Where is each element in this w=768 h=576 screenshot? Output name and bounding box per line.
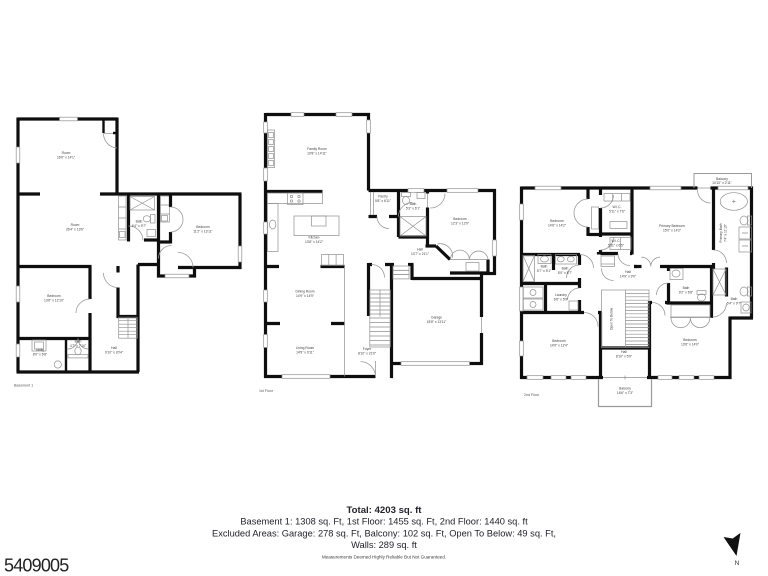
svg-text:N: N <box>735 560 740 567</box>
svg-text:12'3" x 12'9": 12'3" x 12'9" <box>451 222 470 226</box>
svg-text:5'7" x 5'1": 5'7" x 5'1" <box>537 269 552 273</box>
svg-text:14'6" x 14'2": 14'6" x 14'2" <box>548 224 567 228</box>
svg-text:Basement 1: Basement 1 <box>14 384 33 388</box>
svg-text:2nd Floor: 2nd Floor <box>524 393 540 397</box>
svg-text:W.I.C.: W.I.C. <box>613 205 622 209</box>
svg-text:5'11" x 6'5": 5'11" x 6'5" <box>608 244 625 248</box>
svg-text:Hall: Hall <box>111 346 117 350</box>
svg-text:6'4" x 9'7": 6'4" x 9'7" <box>132 224 147 228</box>
svg-text:Total: 4203 sq. ft: Total: 4203 sq. ft <box>347 505 423 516</box>
svg-text:19'8" x 14'11": 19'8" x 14'11" <box>307 152 327 156</box>
svg-text:5'3" x 6'1": 5'3" x 6'1" <box>406 207 421 211</box>
svg-text:26'4" x 13'6": 26'4" x 13'6" <box>66 228 85 232</box>
svg-text:Walls: 289 sq. ft: Walls: 289 sq. ft <box>351 540 417 550</box>
svg-text:13'6" x 12'10": 13'6" x 12'10" <box>44 299 65 303</box>
svg-text:Bath: Bath <box>410 202 417 206</box>
svg-text:Bath: Bath <box>136 220 143 224</box>
svg-text:Basement 1: 1308 sq. Ft, 1st F: Basement 1: 1308 sq. Ft, 1st Floor: 1455… <box>240 517 528 527</box>
svg-text:5409005: 5409005 <box>4 556 69 576</box>
svg-text:8'0" x 6'8": 8'0" x 6'8" <box>33 353 48 357</box>
svg-text:Utility: Utility <box>36 348 44 352</box>
svg-text:14'9" x 14'9": 14'9" x 14'9" <box>296 294 315 298</box>
svg-text:Bath: Bath <box>541 265 548 269</box>
svg-text:Bedroom: Bedroom <box>47 294 61 298</box>
svg-text:13'7" x 21'1": 13'7" x 21'1" <box>411 252 430 256</box>
svg-text:Bath: Bath <box>683 286 690 290</box>
svg-text:Hall: Hall <box>625 270 631 274</box>
svg-text:Bedroom: Bedroom <box>683 338 697 342</box>
svg-text:Room: Room <box>62 151 71 155</box>
svg-text:8'10" x 21'9": 8'10" x 21'9" <box>358 352 377 356</box>
svg-text:5'4" x 9'7": 5'4" x 9'7" <box>727 302 742 306</box>
svg-text:14'9" x 12'4": 14'9" x 12'4" <box>550 344 569 348</box>
svg-text:13'6" x 14'0": 13'6" x 14'0" <box>681 343 700 347</box>
svg-text:8'10" x 5'9": 8'10" x 5'9" <box>616 355 633 359</box>
svg-text:Hall: Hall <box>417 248 423 252</box>
svg-text:Room: Room <box>71 223 80 227</box>
svg-text:Bath: Bath <box>731 297 738 301</box>
svg-text:13'8" x 14'2": 13'8" x 14'2" <box>305 240 324 244</box>
svg-text:Living Room: Living Room <box>296 346 315 350</box>
svg-text:Foyer: Foyer <box>363 347 372 351</box>
svg-text:Laundry: Laundry <box>555 293 567 297</box>
svg-text:14'9" x 9'0": 14'9" x 9'0" <box>620 275 637 279</box>
svg-text:W.I.C.: W.I.C. <box>612 239 621 243</box>
svg-text:6'6" x 5'9": 6'6" x 5'9" <box>554 298 569 302</box>
svg-text:11'2" x 13'11": 11'2" x 13'11" <box>193 230 213 234</box>
svg-text:Primary Bedroom: Primary Bedroom <box>659 224 685 228</box>
svg-text:10'10" x 2'11": 10'10" x 2'11" <box>712 181 732 185</box>
svg-text:7'4" x 11'10": 7'4" x 11'10" <box>724 223 728 242</box>
svg-text:Primary Bath: Primary Bath <box>719 223 723 242</box>
svg-text:Bath: Bath <box>75 340 82 344</box>
svg-text:Bedroom: Bedroom <box>550 219 564 223</box>
svg-text:Family Room: Family Room <box>307 147 327 151</box>
svg-text:14'9" x 9'11": 14'9" x 9'11" <box>296 351 315 355</box>
svg-text:Excluded Areas: Garage: 278 sq: Excluded Areas: Garage: 278 sq. Ft, Balc… <box>212 529 556 539</box>
svg-text:9'10" x 20'4": 9'10" x 20'4" <box>105 351 124 355</box>
svg-text:5'11" x 7'6": 5'11" x 7'6" <box>609 210 626 214</box>
svg-text:Bedroom: Bedroom <box>196 225 210 229</box>
svg-text:Bedroom: Bedroom <box>453 217 467 221</box>
svg-text:4'7" x 7'10": 4'7" x 7'10" <box>70 344 87 348</box>
svg-text:Bath: Bath <box>562 267 569 271</box>
svg-text:8'0" x 5'7": 8'0" x 5'7" <box>558 271 573 275</box>
svg-text:Balcony: Balcony <box>619 387 631 391</box>
svg-text:Measurements Deemed Highly Rel: Measurements Deemed Highly Reliable But … <box>322 555 446 560</box>
svg-text:Open To Below: Open To Below <box>610 307 614 330</box>
svg-text:5'8" x 6'11": 5'8" x 6'11" <box>375 199 392 203</box>
svg-text:9'2" x 6'8": 9'2" x 6'8" <box>679 291 694 295</box>
svg-text:Kitchen: Kitchen <box>309 236 320 240</box>
svg-text:Dining Room: Dining Room <box>295 290 314 294</box>
svg-text:18'8" x 13'11": 18'8" x 13'11" <box>427 320 447 324</box>
svg-text:Pantry: Pantry <box>378 195 388 199</box>
svg-text:Hall: Hall <box>621 350 627 354</box>
svg-text:16'6" x 14'1": 16'6" x 14'1" <box>57 156 76 160</box>
svg-text:Garage: Garage <box>431 316 442 320</box>
svg-text:1st Floor: 1st Floor <box>259 389 274 393</box>
svg-text:15'0" x 14'2": 15'0" x 14'2" <box>663 229 682 233</box>
svg-text:16'6" x 7'3": 16'6" x 7'3" <box>617 391 634 395</box>
svg-text:Bedroom: Bedroom <box>552 339 566 343</box>
